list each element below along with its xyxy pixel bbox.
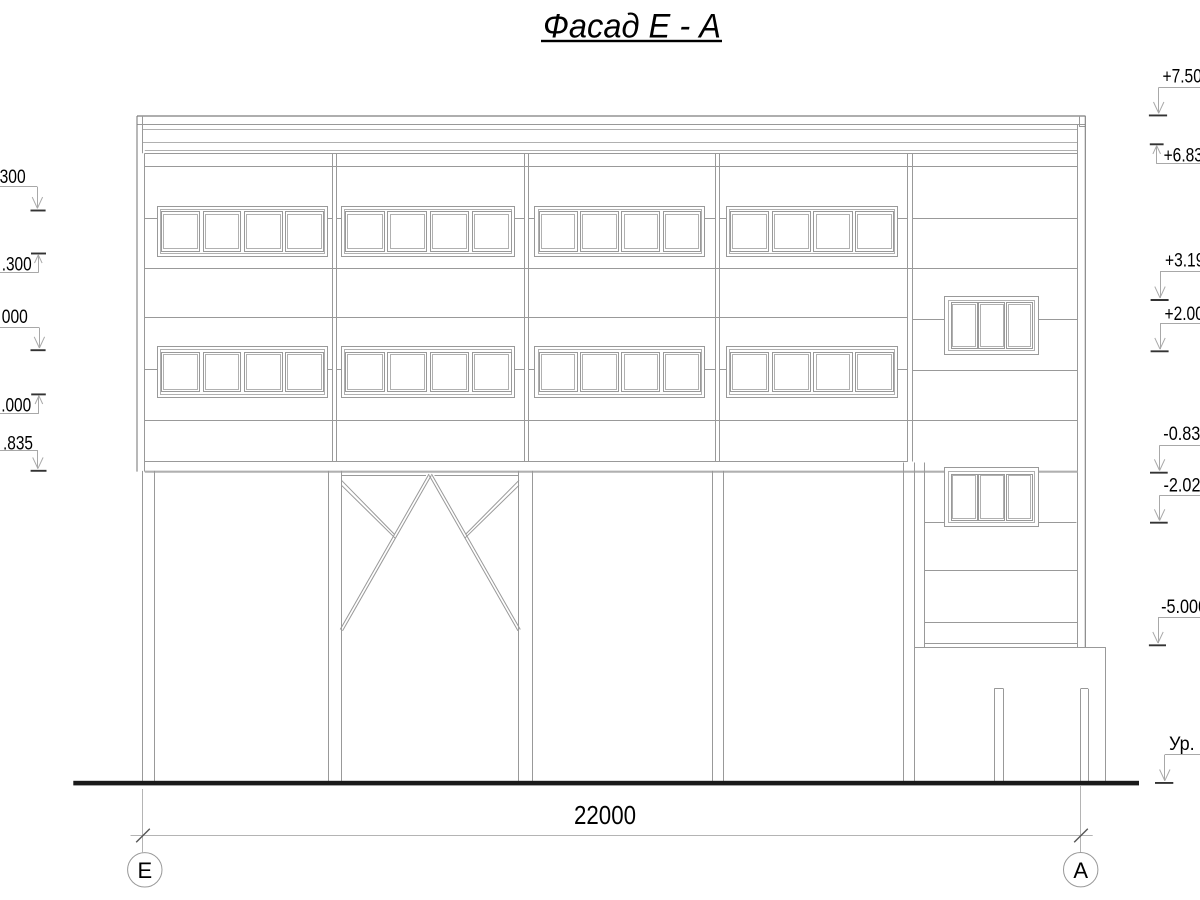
svg-text:000: 000: [2, 307, 28, 328]
svg-text:+6.830: +6.830: [1164, 146, 1200, 167]
svg-text:22000: 22000: [574, 802, 636, 830]
svg-text:-0.835: -0.835: [1163, 424, 1200, 445]
svg-text:+3.190: +3.190: [1165, 251, 1200, 272]
svg-text:300: 300: [0, 167, 26, 188]
svg-text:.835: .835: [3, 433, 33, 454]
svg-text:+2.000: +2.000: [1165, 304, 1200, 325]
svg-text:+7.500: +7.500: [1163, 67, 1200, 88]
svg-text:.300: .300: [2, 255, 32, 276]
svg-text:-5.000: -5.000: [1161, 597, 1200, 618]
svg-text:А: А: [1073, 858, 1088, 883]
svg-text:Е: Е: [137, 858, 152, 883]
svg-text:Ур. з.: Ур. з.: [1169, 734, 1200, 755]
svg-text:.000: .000: [1, 396, 31, 417]
svg-text:-2.025: -2.025: [1164, 476, 1200, 497]
